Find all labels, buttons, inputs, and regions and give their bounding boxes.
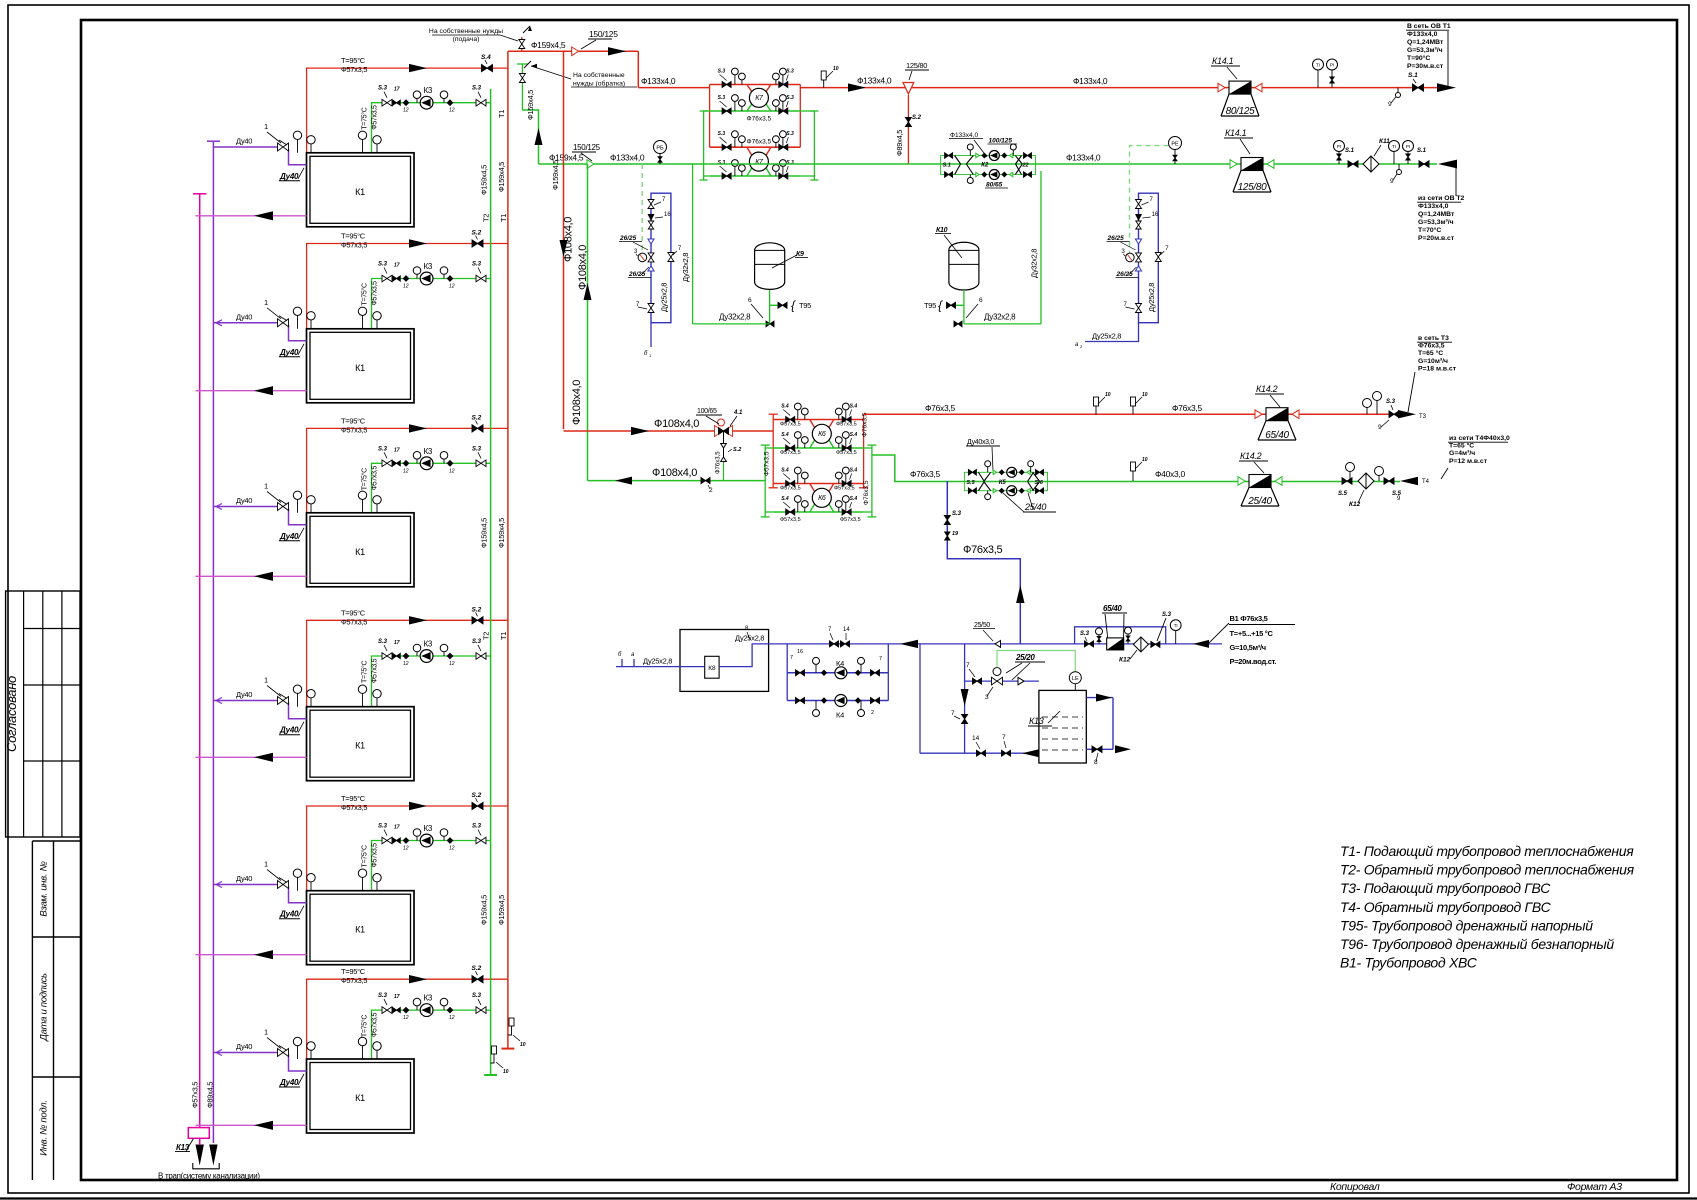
svg-text:S.3: S.3 (718, 69, 726, 75)
svg-text:12: 12 (403, 1015, 409, 1021)
svg-text:12: 12 (449, 468, 455, 474)
svg-text:В сеть ОВ Т1: В сеть ОВ Т1 (1407, 23, 1451, 30)
svg-text:S.2: S.2 (472, 414, 482, 421)
svg-text:Ф159х4,5: Ф159х4,5 (497, 518, 506, 548)
svg-text:Инв. № подл.: Инв. № подл. (39, 1100, 50, 1155)
svg-text:Ду40: Ду40 (279, 726, 299, 735)
svg-text:Ф159х4,5: Ф159х4,5 (480, 895, 489, 925)
svg-text:G=53,3м³/ч: G=53,3м³/ч (1418, 219, 1454, 226)
svg-text:Ф76х3,5: Ф76х3,5 (925, 403, 955, 413)
svg-text:16: 16 (1152, 212, 1159, 218)
svg-text:S.3: S.3 (378, 824, 388, 830)
svg-text:S.3: S.3 (1080, 631, 1090, 637)
svg-text:Т=95°С: Т=95°С (341, 967, 366, 976)
svg-text:Р=20м.вод.ст.: Р=20м.вод.ст. (1230, 657, 1277, 666)
svg-text:Ду40: Ду40 (236, 1042, 252, 1051)
svg-text:Ду40: Ду40 (236, 137, 252, 146)
svg-text:S.3: S.3 (472, 824, 482, 830)
svg-text:S.4: S.4 (781, 432, 789, 438)
svg-text:26/25: 26/25 (628, 271, 646, 278)
svg-text:К1: К1 (355, 925, 365, 935)
svg-text:S.3: S.3 (786, 69, 794, 75)
svg-text:Ф57х3,5: Ф57х3,5 (341, 617, 367, 626)
svg-text:PI: PI (1337, 144, 1341, 149)
svg-text:К3: К3 (424, 262, 433, 271)
svg-text:17: 17 (394, 87, 400, 93)
svg-text:S.1: S.1 (1345, 148, 1355, 154)
svg-text:12: 12 (403, 846, 409, 852)
svg-text:4.1: 4.1 (733, 410, 743, 416)
svg-text:Ф57х3,5: Ф57х3,5 (372, 466, 379, 491)
svg-text:S.3: S.3 (786, 131, 794, 137)
svg-text:К5: К5 (999, 480, 1007, 486)
svg-text:Ду40: Ду40 (236, 874, 252, 883)
svg-text:К4: К4 (836, 659, 844, 668)
svg-text:S.3: S.3 (378, 639, 388, 645)
svg-text:Т=95°С: Т=95°С (341, 56, 366, 65)
svg-text:7: 7 (1002, 734, 1006, 741)
svg-text:К9: К9 (796, 251, 804, 258)
svg-text:Т=+5...+15 °С: Т=+5...+15 °С (1230, 629, 1274, 638)
svg-text:Ду40: Ду40 (279, 172, 299, 181)
svg-text:К13: К13 (1029, 716, 1044, 726)
svg-text:Ф76х3,5: Ф76х3,5 (863, 480, 870, 505)
svg-text:12: 12 (449, 284, 455, 290)
svg-text:Т2- Обратный трубопровод тепло: Т2- Обратный трубопровод теплоснабжения (1340, 862, 1635, 878)
svg-text:S.2: S.2 (472, 965, 482, 972)
svg-text:Т4- Обратный трубопровод ГВС: Т4- Обратный трубопровод ГВС (1340, 899, 1552, 915)
svg-text:14: 14 (843, 627, 850, 633)
svg-text:S.3: S.3 (718, 160, 726, 166)
svg-text:Дата и подпись: Дата и подпись (39, 973, 50, 1042)
svg-text:Т4: Т4 (1422, 479, 1430, 485)
svg-text:10: 10 (520, 1042, 526, 1048)
svg-text:Ф57х3,5: Ф57х3,5 (372, 105, 379, 130)
svg-text:22: 22 (1022, 163, 1029, 169)
svg-text:80/65: 80/65 (986, 182, 1003, 189)
svg-text:На собственные нужды: На собственные нужды (429, 27, 503, 35)
svg-text:Ф76х3,5: Ф76х3,5 (1172, 403, 1202, 413)
svg-text:10: 10 (1105, 392, 1111, 398)
svg-text:7: 7 (790, 655, 793, 661)
svg-text:S.4: S.4 (781, 468, 789, 474)
svg-text:65/40: 65/40 (1265, 430, 1289, 441)
svg-text:Согласовано: Согласовано (4, 676, 19, 752)
svg-text:Ф133х4,0: Ф133х4,0 (1066, 153, 1101, 163)
svg-text:Ф159х4,5: Ф159х4,5 (551, 160, 560, 190)
svg-text:10: 10 (833, 66, 839, 72)
svg-text:Ф57х3,5: Ф57х3,5 (341, 425, 367, 434)
svg-text:(подача): (подача) (453, 36, 480, 43)
svg-text:17: 17 (394, 994, 400, 1000)
svg-text:Ф159х4,5: Ф159х4,5 (480, 165, 489, 195)
svg-text:Ф57х3,5: Ф57х3,5 (834, 486, 855, 492)
svg-text:16: 16 (664, 212, 671, 218)
svg-text:S.5: S.5 (966, 480, 975, 486)
svg-text:S.3: S.3 (472, 86, 482, 92)
svg-text:G=4м³/ч: G=4м³/ч (1449, 450, 1475, 457)
svg-text:Т=75°С: Т=75°С (361, 1015, 369, 1037)
svg-text:19: 19 (952, 531, 959, 537)
svg-text:Ф57х3,5: Ф57х3,5 (372, 658, 379, 683)
svg-text:S.3: S.3 (378, 86, 388, 92)
svg-text:Т95: Т95 (924, 301, 936, 310)
svg-text:10: 10 (1142, 392, 1148, 398)
svg-text:В1- Трубопровод ХВС: В1- Трубопровод ХВС (1340, 955, 1478, 971)
svg-text:Р=30м.в.ст: Р=30м.в.ст (1407, 63, 1444, 70)
svg-text:К2: К2 (981, 163, 989, 169)
svg-text:Ф108х4,0: Ф108х4,0 (652, 467, 697, 479)
svg-text:Ф57х3,5: Ф57х3,5 (341, 803, 367, 812)
svg-text:S.4: S.4 (850, 496, 858, 502)
svg-text:Ф108х4,0: Ф108х4,0 (654, 418, 699, 430)
svg-text:S.3: S.3 (472, 639, 482, 645)
svg-text:Ф76х3,5: Ф76х3,5 (716, 451, 722, 474)
svg-text:Т3- Подающий трубопровод ГВС: Т3- Подающий трубопровод ГВС (1340, 880, 1551, 896)
svg-text:Р=12 м.в.ст: Р=12 м.в.ст (1449, 458, 1488, 465)
svg-text:К14.1: К14.1 (1225, 128, 1247, 138)
svg-text:Ду32х2,8: Ду32х2,8 (984, 313, 1016, 322)
svg-text:7: 7 (879, 656, 882, 662)
svg-text:26/25: 26/25 (1107, 235, 1125, 242)
svg-text:S.2: S.2 (912, 115, 922, 121)
svg-text:S.3: S.3 (378, 993, 388, 999)
svg-text:Ду40: Ду40 (236, 496, 252, 505)
svg-text:S.3: S.3 (952, 511, 962, 517)
svg-text:S.2: S.2 (472, 606, 482, 613)
svg-text:Ф108х4,0: Ф108х4,0 (563, 217, 575, 262)
svg-text:100/125: 100/125 (989, 138, 1013, 145)
svg-text:S.1: S.1 (1417, 148, 1427, 154)
svg-text:Ф57х3,5: Ф57х3,5 (341, 65, 367, 74)
svg-text:К14.2: К14.2 (1256, 384, 1278, 394)
svg-text:Ду32х2,8: Ду32х2,8 (719, 313, 751, 322)
svg-text:S.4: S.4 (481, 54, 491, 61)
svg-text:100/65: 100/65 (697, 408, 717, 415)
svg-text:S.4: S.4 (850, 468, 858, 474)
svg-text:В трап(систему канализации): В трап(систему канализации) (158, 1172, 260, 1181)
svg-text:Ф57х3,5: Ф57х3,5 (372, 281, 379, 306)
svg-text:Т=75°С: Т=75°С (361, 107, 369, 129)
svg-text:1: 1 (264, 298, 268, 307)
svg-text:S.1: S.1 (1408, 72, 1418, 79)
svg-text:125/80: 125/80 (906, 61, 927, 70)
svg-text:12: 12 (449, 1015, 455, 1021)
svg-text:Ф159х4,5: Ф159х4,5 (497, 895, 506, 925)
svg-text:Ф57х3,5: Ф57х3,5 (372, 843, 379, 868)
svg-text:TI: TI (1392, 144, 1396, 149)
svg-text:S.3: S.3 (718, 95, 726, 101)
svg-text:Т=95°С: Т=95°С (341, 232, 366, 241)
svg-text:Ф40х3,0: Ф40х3,0 (1155, 469, 1185, 479)
svg-text:Ф57х3,5: Ф57х3,5 (372, 1012, 379, 1037)
svg-text:16: 16 (797, 649, 803, 655)
svg-text:3: 3 (985, 694, 989, 701)
svg-text:Т2: Т2 (482, 632, 491, 640)
svg-text:К1: К1 (355, 187, 365, 197)
svg-text:25/50: 25/50 (974, 622, 990, 629)
svg-text:S.2: S.2 (733, 447, 741, 453)
svg-text:Ф76х3,5: Ф76х3,5 (1418, 343, 1445, 350)
svg-text:Т=65 °С: Т=65 °С (1449, 442, 1474, 450)
svg-text:В1 Ф76х3,5: В1 Ф76х3,5 (1230, 614, 1268, 623)
svg-text:Ф159х4,5: Ф159х4,5 (497, 162, 506, 192)
svg-text:Ф108х4,0: Ф108х4,0 (577, 245, 589, 290)
svg-text:Ф57х3,5: Ф57х3,5 (780, 486, 801, 492)
svg-text:S.3: S.3 (472, 262, 482, 268)
svg-text:К3: К3 (424, 447, 433, 456)
svg-text:10: 10 (503, 1069, 509, 1075)
svg-text:Ф159х4,5: Ф159х4,5 (531, 40, 566, 50)
svg-text:S.3: S.3 (472, 993, 482, 999)
svg-text:Ду32х2,8: Ду32х2,8 (681, 253, 690, 282)
svg-text:К3: К3 (424, 86, 433, 95)
svg-text:S.4: S.4 (781, 404, 789, 410)
svg-text:Ф57х3,5: Ф57х3,5 (780, 422, 801, 428)
svg-text:Р=18 м.в.ст: Р=18 м.в.ст (1418, 365, 1457, 372)
svg-text:Ф76х3,5: Ф76х3,5 (747, 116, 772, 123)
svg-text:Т=75°С: Т=75°С (361, 845, 369, 867)
svg-text:Ф133х4,0: Ф133х4,0 (641, 76, 676, 86)
svg-text:6: 6 (748, 297, 752, 304)
svg-text:К12: К12 (1119, 657, 1131, 664)
svg-text:Ф76х3,5: Ф76х3,5 (963, 544, 1002, 556)
svg-text:S.3: S.3 (786, 160, 794, 166)
svg-text:Ф133х4,0: Ф133х4,0 (1073, 76, 1108, 86)
svg-text:9: 9 (1378, 424, 1382, 431)
svg-text:12: 12 (403, 661, 409, 667)
svg-text:6: 6 (979, 297, 983, 304)
svg-text:Ф133х4,0: Ф133х4,0 (857, 76, 892, 86)
svg-text:Копировал: Копировал (1330, 1181, 1380, 1193)
svg-text:Q=1,24МВт: Q=1,24МВт (1407, 39, 1444, 46)
svg-text:S.3: S.3 (1386, 399, 1396, 405)
svg-text:Ф76х3,5: Ф76х3,5 (862, 412, 869, 437)
svg-text:S.5: S.5 (1338, 491, 1348, 497)
svg-text:Ф57х3,5: Ф57х3,5 (840, 517, 861, 523)
svg-text:TI: TI (1174, 623, 1178, 628)
svg-text:К6: К6 (818, 495, 826, 502)
svg-text:G=53,3м³/ч: G=53,3м³/ч (1407, 47, 1443, 54)
svg-text:25/40: 25/40 (1247, 496, 1272, 507)
svg-text:17: 17 (394, 447, 400, 453)
svg-text:Q=1,24МВт: Q=1,24МВт (1418, 211, 1455, 218)
svg-text:Ф133х4,0: Ф133х4,0 (950, 132, 978, 139)
svg-text:Ф57х3,5: Ф57х3,5 (341, 976, 367, 985)
svg-text:12: 12 (449, 108, 455, 114)
svg-text:25/40: 25/40 (1024, 502, 1046, 512)
svg-text:Ду25х2,8: Ду25х2,8 (1092, 332, 1121, 341)
svg-text:S.3: S.3 (472, 446, 482, 452)
svg-text:Ду25х2,8: Ду25х2,8 (643, 657, 672, 666)
svg-text:Ф89х4,5: Ф89х4,5 (895, 130, 904, 156)
svg-text:К6: К6 (818, 431, 826, 438)
svg-text:Т2: Т2 (482, 214, 491, 222)
svg-text:Т=90°С: Т=90°С (1407, 54, 1430, 62)
svg-text:Ф57х3,5: Ф57х3,5 (780, 450, 801, 456)
svg-text:Ф133х4,0: Ф133х4,0 (1407, 31, 1438, 38)
svg-text:РБ: РБ (656, 146, 664, 152)
svg-text:К1: К1 (355, 547, 365, 557)
svg-text:Ду40: Ду40 (279, 532, 299, 541)
svg-text:Ф133х4,0: Ф133х4,0 (1418, 203, 1449, 210)
svg-text:12: 12 (449, 661, 455, 667)
svg-text:17: 17 (394, 825, 400, 831)
svg-text:1: 1 (264, 676, 268, 685)
svg-text:S.3: S.3 (786, 95, 794, 101)
svg-text:Ф133х4,0: Ф133х4,0 (610, 153, 645, 163)
svg-text:Ду32х2,8: Ду32х2,8 (1030, 249, 1039, 278)
svg-text:Т1- Подающий трубопровод тепло: Т1- Подающий трубопровод теплоснабжения (1340, 843, 1634, 859)
svg-text:Ду25х2,8: Ду25х2,8 (1147, 283, 1156, 312)
svg-text:S.3: S.3 (718, 131, 726, 137)
svg-text:2: 2 (871, 710, 874, 716)
svg-text:17: 17 (394, 263, 400, 269)
svg-text:S.4: S.4 (850, 432, 858, 438)
svg-text:150/125: 150/125 (573, 143, 601, 152)
svg-text:1: 1 (264, 482, 268, 491)
svg-text:TI: TI (1316, 63, 1320, 68)
svg-text:26/25: 26/25 (1116, 271, 1134, 278)
svg-text:Ду40х3,0: Ду40х3,0 (967, 439, 994, 446)
svg-text:Ф57х3,5: Ф57х3,5 (191, 1082, 200, 1108)
svg-text:Ду40: Ду40 (236, 312, 252, 321)
svg-text:Т=65 °С: Т=65 °С (1418, 349, 1443, 357)
svg-text:из сети Т4Ф40х3,0: из сети Т4Ф40х3,0 (1449, 435, 1510, 442)
svg-text:PI: PI (1330, 63, 1334, 68)
svg-text:Формат А3: Формат А3 (1567, 1181, 1622, 1193)
svg-text:Т=75°С: Т=75°С (361, 283, 369, 305)
svg-text:7: 7 (966, 662, 970, 669)
svg-text:К3: К3 (424, 824, 433, 833)
svg-text:Т95: Т95 (799, 301, 811, 310)
svg-text:К4: К4 (836, 711, 844, 720)
svg-text:Ду40: Ду40 (279, 1078, 299, 1087)
svg-text:РЕ: РЕ (1171, 142, 1179, 148)
svg-text:в сеть Т3: в сеть Т3 (1418, 335, 1449, 342)
svg-text:12: 12 (449, 846, 455, 852)
svg-text:PI: PI (1406, 144, 1410, 149)
svg-text:К14.2: К14.2 (1240, 451, 1262, 461)
svg-text:80/125: 80/125 (1226, 106, 1256, 117)
svg-text:S.1: S.1 (943, 163, 951, 169)
svg-text:Т=95°С: Т=95°С (341, 608, 366, 617)
svg-text:Ду40: Ду40 (279, 348, 299, 357)
svg-text:Ф76х3,5: Ф76х3,5 (747, 139, 772, 146)
svg-text:1: 1 (264, 1028, 268, 1037)
svg-text:G=10м³/ч: G=10м³/ч (1418, 358, 1448, 365)
svg-text:К10: К10 (936, 227, 948, 234)
svg-text:Ду40: Ду40 (236, 690, 252, 699)
svg-text:нужды (обратка): нужды (обратка) (573, 80, 625, 88)
svg-text:1: 1 (264, 860, 268, 869)
svg-text:Ду25х2,8: Ду25х2,8 (659, 283, 668, 312)
svg-text:Т3: Т3 (1419, 414, 1427, 420)
svg-text:Т1: Т1 (499, 632, 508, 640)
svg-text:Ф57х3,5: Ф57х3,5 (764, 451, 771, 476)
svg-text:Т=95°С: Т=95°С (341, 416, 366, 425)
svg-text:К3: К3 (424, 640, 433, 649)
svg-text:125/80: 125/80 (1238, 182, 1268, 193)
svg-text:К1: К1 (355, 363, 365, 373)
svg-text:10: 10 (1142, 457, 1148, 463)
svg-text:17: 17 (394, 640, 400, 646)
svg-text:Т=70°С: Т=70°С (1418, 226, 1441, 234)
svg-text:Ф108х4,0: Ф108х4,0 (571, 380, 583, 425)
svg-text:25/20: 25/20 (1015, 653, 1035, 662)
svg-text:Ф57х3,5: Ф57х3,5 (341, 241, 367, 250)
svg-text:S.4: S.4 (850, 404, 858, 410)
svg-text:Т1: Т1 (499, 214, 508, 222)
svg-text:Ф159х4,5: Ф159х4,5 (480, 518, 489, 548)
svg-text:Ду40: Ду40 (279, 910, 299, 919)
svg-text:G=10,5м³/ч: G=10,5м³/ч (1230, 643, 1266, 652)
svg-text:Ф159х4,5: Ф159х4,5 (526, 90, 535, 120)
svg-text:Ф57х3,5: Ф57х3,5 (836, 450, 857, 456)
svg-text:Т95- Трубопровод дренажный нап: Т95- Трубопровод дренажный напорный (1340, 917, 1593, 933)
svg-text:S.3: S.3 (378, 446, 388, 452)
svg-text:S.4: S.4 (781, 496, 789, 502)
svg-text:12: 12 (403, 284, 409, 290)
svg-text:Р=20м.в.ст: Р=20м.в.ст (1418, 235, 1455, 242)
svg-text:Ф57х3,5: Ф57х3,5 (836, 422, 857, 428)
svg-text:К1: К1 (355, 741, 365, 751)
svg-text:К8: К8 (708, 665, 716, 672)
svg-text:Взам. инв. №: Взам. инв. № (39, 861, 50, 916)
svg-text:К1: К1 (355, 1093, 365, 1103)
svg-text:Т=75°С: Т=75°С (361, 468, 369, 490)
svg-text:12: 12 (403, 108, 409, 114)
svg-text:S.3: S.3 (1162, 612, 1172, 618)
svg-text:Т=75°С: Т=75°С (361, 661, 369, 683)
svg-text:S.3: S.3 (378, 262, 388, 268)
svg-text:14: 14 (972, 735, 980, 742)
svg-text:На собственные: На собственные (573, 71, 625, 79)
svg-text:1: 1 (264, 122, 268, 131)
svg-text:Ф76х3,5: Ф76х3,5 (910, 469, 940, 479)
svg-text:К3: К3 (424, 994, 433, 1003)
svg-text:К14.1: К14.1 (1212, 56, 1234, 66)
svg-text:S.2: S.2 (472, 792, 482, 799)
svg-text:Т=95°С: Т=95°С (341, 794, 366, 803)
svg-text:из сети ОВ Т2: из сети ОВ Т2 (1418, 195, 1465, 202)
svg-text:150/125: 150/125 (589, 29, 618, 39)
svg-text:S.2: S.2 (472, 230, 482, 237)
svg-text:26/25: 26/25 (619, 235, 637, 242)
svg-text:Т1: Т1 (497, 110, 506, 118)
svg-text:65/40: 65/40 (1103, 604, 1122, 613)
svg-text:12: 12 (403, 468, 409, 474)
svg-text:LE: LE (1072, 676, 1079, 682)
svg-text:Т96- Трубопровод дренажный без: Т96- Трубопровод дренажный безнапорный (1340, 936, 1614, 952)
svg-text:Ф57х3,5: Ф57х3,5 (780, 517, 801, 523)
svg-text:S.6: S.6 (1035, 480, 1044, 486)
svg-text:Ф89х4,5: Ф89х4,5 (205, 1082, 214, 1108)
